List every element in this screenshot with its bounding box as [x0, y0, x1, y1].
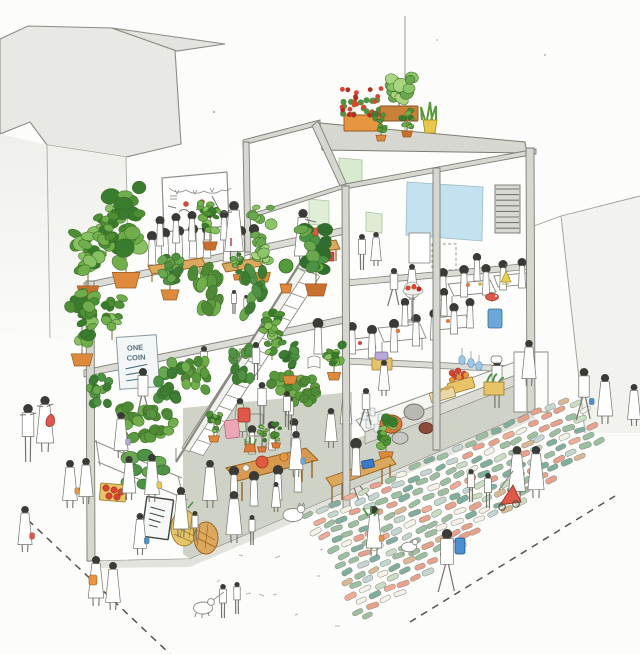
svg-text:COIN: COIN: [126, 352, 145, 362]
svg-text:ONE: ONE: [127, 343, 144, 353]
